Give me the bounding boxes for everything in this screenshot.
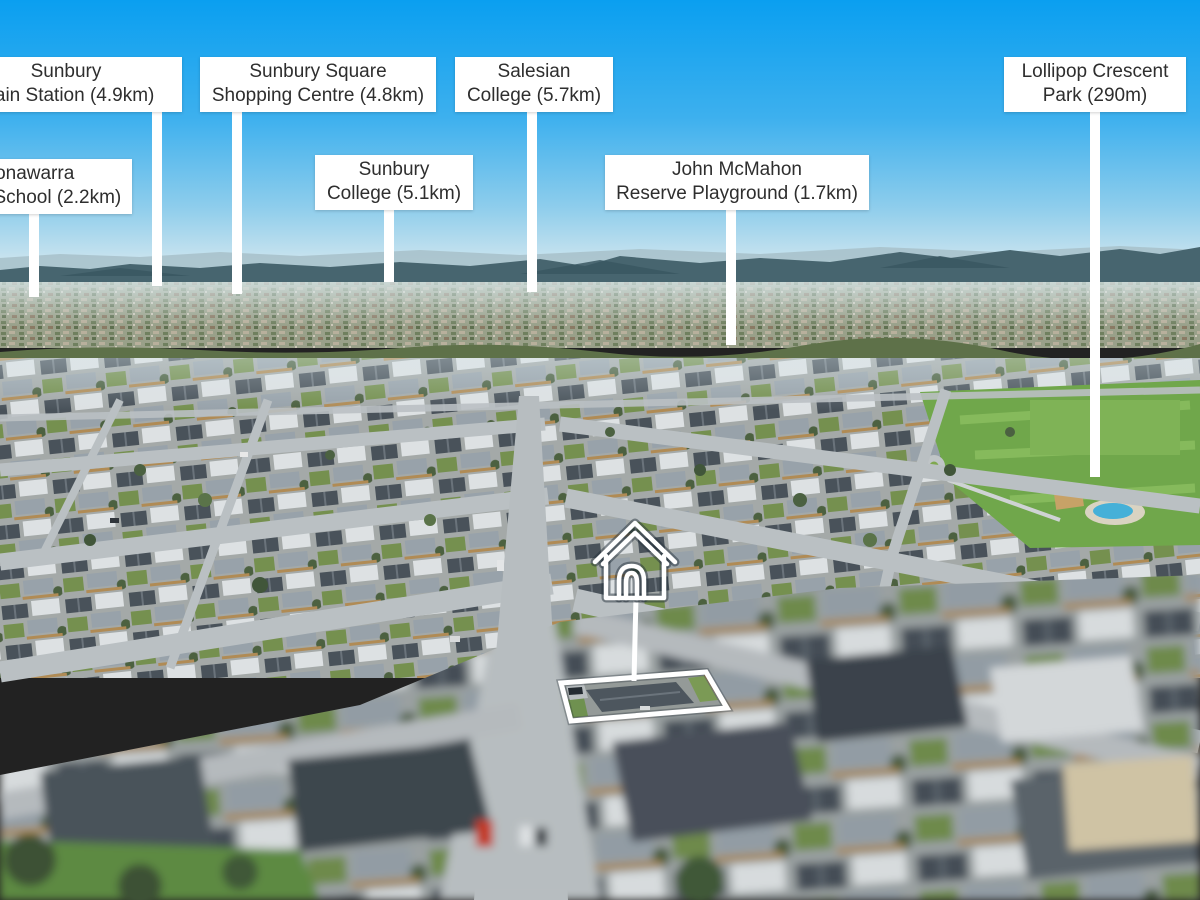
callout-line: John McMahon bbox=[605, 158, 869, 182]
aerial-photo-stage: Sunbury Train Station (4.9km) Goonawarra… bbox=[0, 0, 1200, 900]
callout-lollipop-crescent-park: Lollipop Crescent Park (290m) bbox=[1004, 57, 1186, 112]
callout-line: Train Station (4.9km) bbox=[0, 84, 182, 108]
callout-john-mcmahon-reserve: John McMahon Reserve Playground (1.7km) bbox=[605, 155, 869, 210]
distant-township bbox=[0, 282, 1200, 348]
callout-line: Lollipop Crescent bbox=[1004, 60, 1186, 84]
callout-line: Reserve Playground (1.7km) bbox=[605, 182, 869, 206]
leader-line-goonawarra-school bbox=[29, 210, 39, 297]
leader-line-john-mcmahon bbox=[726, 206, 736, 345]
callout-sunbury-square: Sunbury Square Shopping Centre (4.8km) bbox=[200, 57, 436, 112]
callout-line: Primary School (2.2km) bbox=[0, 186, 132, 210]
leader-line-train-station bbox=[152, 110, 162, 286]
callout-line: Sunbury bbox=[315, 158, 473, 182]
callout-line: Sunbury bbox=[0, 60, 182, 84]
callout-line: Sunbury Square bbox=[200, 60, 436, 84]
sky bbox=[0, 0, 1200, 280]
callout-line: Goonawarra bbox=[0, 162, 132, 186]
callout-sunbury-train-station: Sunbury Train Station (4.9km) bbox=[0, 57, 182, 112]
callout-salesian-college: Salesian College (5.7km) bbox=[455, 57, 613, 112]
callout-sunbury-college: Sunbury College (5.1km) bbox=[315, 155, 473, 210]
callout-line: Salesian bbox=[455, 60, 613, 84]
callout-goonawarra-primary-school: Goonawarra Primary School (2.2km) bbox=[0, 159, 132, 214]
leader-line-salesian-college bbox=[527, 110, 537, 292]
callout-line: College (5.7km) bbox=[455, 84, 613, 108]
aerial-photograph bbox=[0, 0, 1200, 900]
callout-line: Shopping Centre (4.8km) bbox=[200, 84, 436, 108]
callout-line: Park (290m) bbox=[1004, 84, 1186, 108]
leader-line-sunbury-college bbox=[384, 206, 394, 282]
callout-line: College (5.1km) bbox=[315, 182, 473, 206]
leader-line-sunbury-square bbox=[232, 110, 242, 294]
leader-line-lollipop-park bbox=[1090, 110, 1100, 477]
